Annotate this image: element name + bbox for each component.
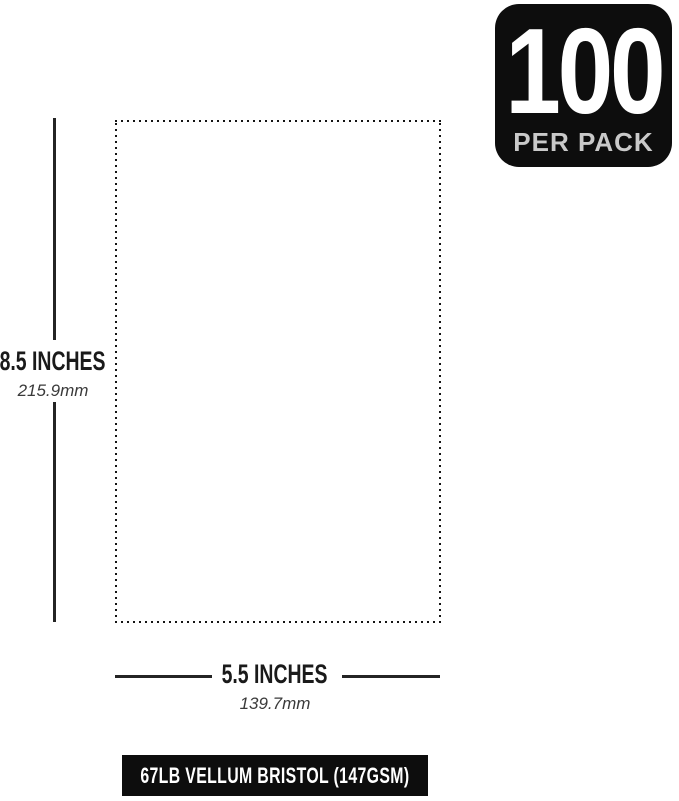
- width-dimension-line-right: [342, 675, 440, 678]
- width-dimension-label-group: 5.5 INCHES 139.7mm: [210, 661, 340, 712]
- per-pack-badge: 100 PER PACK: [495, 4, 672, 167]
- width-dimension-line-left: [115, 675, 212, 678]
- height-mm-label: 215.9mm: [18, 382, 89, 399]
- paper-spec-bar: 67LB VELLUM BRISTOL (147GSM): [122, 755, 428, 796]
- height-dimension-label-group: 8.5 INCHES 215.9mm: [0, 348, 108, 399]
- height-dimension-line-bottom: [53, 402, 56, 622]
- height-dimension-line-top: [53, 118, 56, 340]
- paper-spec-label: 67LB VELLUM BRISTOL (147GSM): [140, 765, 409, 787]
- product-dimension-diagram: 100 PER PACK 8.5 INCHES 215.9mm 5.5 INCH…: [0, 0, 679, 801]
- sheet-outline: [115, 120, 441, 623]
- width-mm-label: 139.7mm: [240, 695, 311, 712]
- pack-count: 100: [505, 12, 662, 130]
- height-inches-label: 8.5 INCHES: [0, 348, 106, 375]
- width-inches-label: 5.5 INCHES: [222, 661, 328, 688]
